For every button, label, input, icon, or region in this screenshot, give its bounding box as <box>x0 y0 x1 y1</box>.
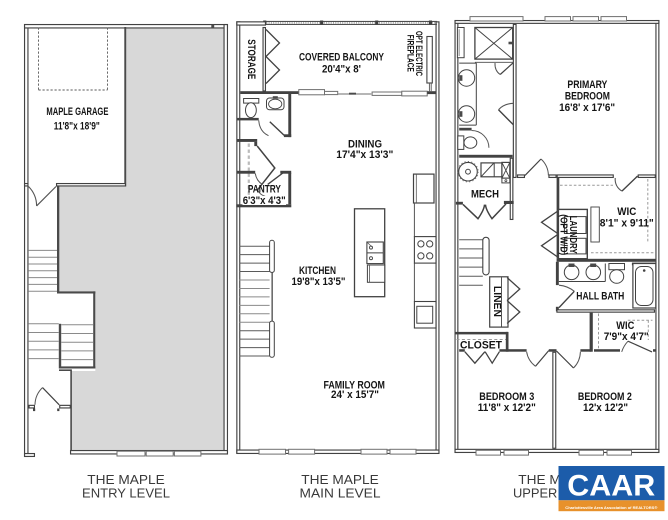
svg-text:17'4"x 13'3": 17'4"x 13'3" <box>336 149 393 161</box>
svg-text:Charlottesville Area Associati: Charlottesville Area Association of REAL… <box>565 506 657 510</box>
svg-text:11'8" x 12'2": 11'8" x 12'2" <box>478 402 536 414</box>
svg-text:12'x 12'2": 12'x 12'2" <box>583 402 628 414</box>
svg-text:6'3"x 4'3": 6'3"x 4'3" <box>243 195 286 207</box>
svg-text:LINEN: LINEN <box>491 286 503 317</box>
svg-text:16'8' x 17'6": 16'8' x 17'6" <box>559 102 615 114</box>
svg-text:PANTRY: PANTRY <box>248 183 281 195</box>
svg-text:BEDROOM: BEDROOM <box>565 91 610 103</box>
svg-text:20'4"x 8': 20'4"x 8' <box>322 64 361 76</box>
svg-text:CAAR: CAAR <box>567 470 655 503</box>
svg-text:BEDROOM 2: BEDROOM 2 <box>578 391 632 403</box>
svg-text:MECH: MECH <box>471 188 499 200</box>
svg-text:MAIN LEVEL: MAIN LEVEL <box>300 485 381 500</box>
svg-text:24' x 15'7": 24' x 15'7" <box>331 389 379 401</box>
svg-text:KITCHEN: KITCHEN <box>299 265 336 277</box>
svg-text:ENTRY LEVEL: ENTRY LEVEL <box>82 485 170 500</box>
svg-text:(OPT W/D): (OPT W/D) <box>558 214 569 255</box>
svg-text:7'9"x 4'7": 7'9"x 4'7" <box>604 331 649 343</box>
svg-text:HALL BATH: HALL BATH <box>576 290 624 302</box>
svg-text:CLOSET: CLOSET <box>460 340 502 352</box>
svg-text:MAPLE GARAGE: MAPLE GARAGE <box>46 106 108 118</box>
svg-text:8'1" x 9'11": 8'1" x 9'11" <box>600 217 654 229</box>
svg-text:PRIMARY: PRIMARY <box>567 79 607 91</box>
svg-text:11'8"x 18'9": 11'8"x 18'9" <box>54 120 100 132</box>
svg-text:FIREPLACE: FIREPLACE <box>404 35 415 72</box>
svg-text:COVERED BALCONY: COVERED BALCONY <box>299 52 384 64</box>
svg-text:BEDROOM 3: BEDROOM 3 <box>479 391 534 403</box>
svg-text:STORAGE: STORAGE <box>245 39 257 79</box>
svg-text:19'8"x 13'5": 19'8"x 13'5" <box>292 276 346 288</box>
